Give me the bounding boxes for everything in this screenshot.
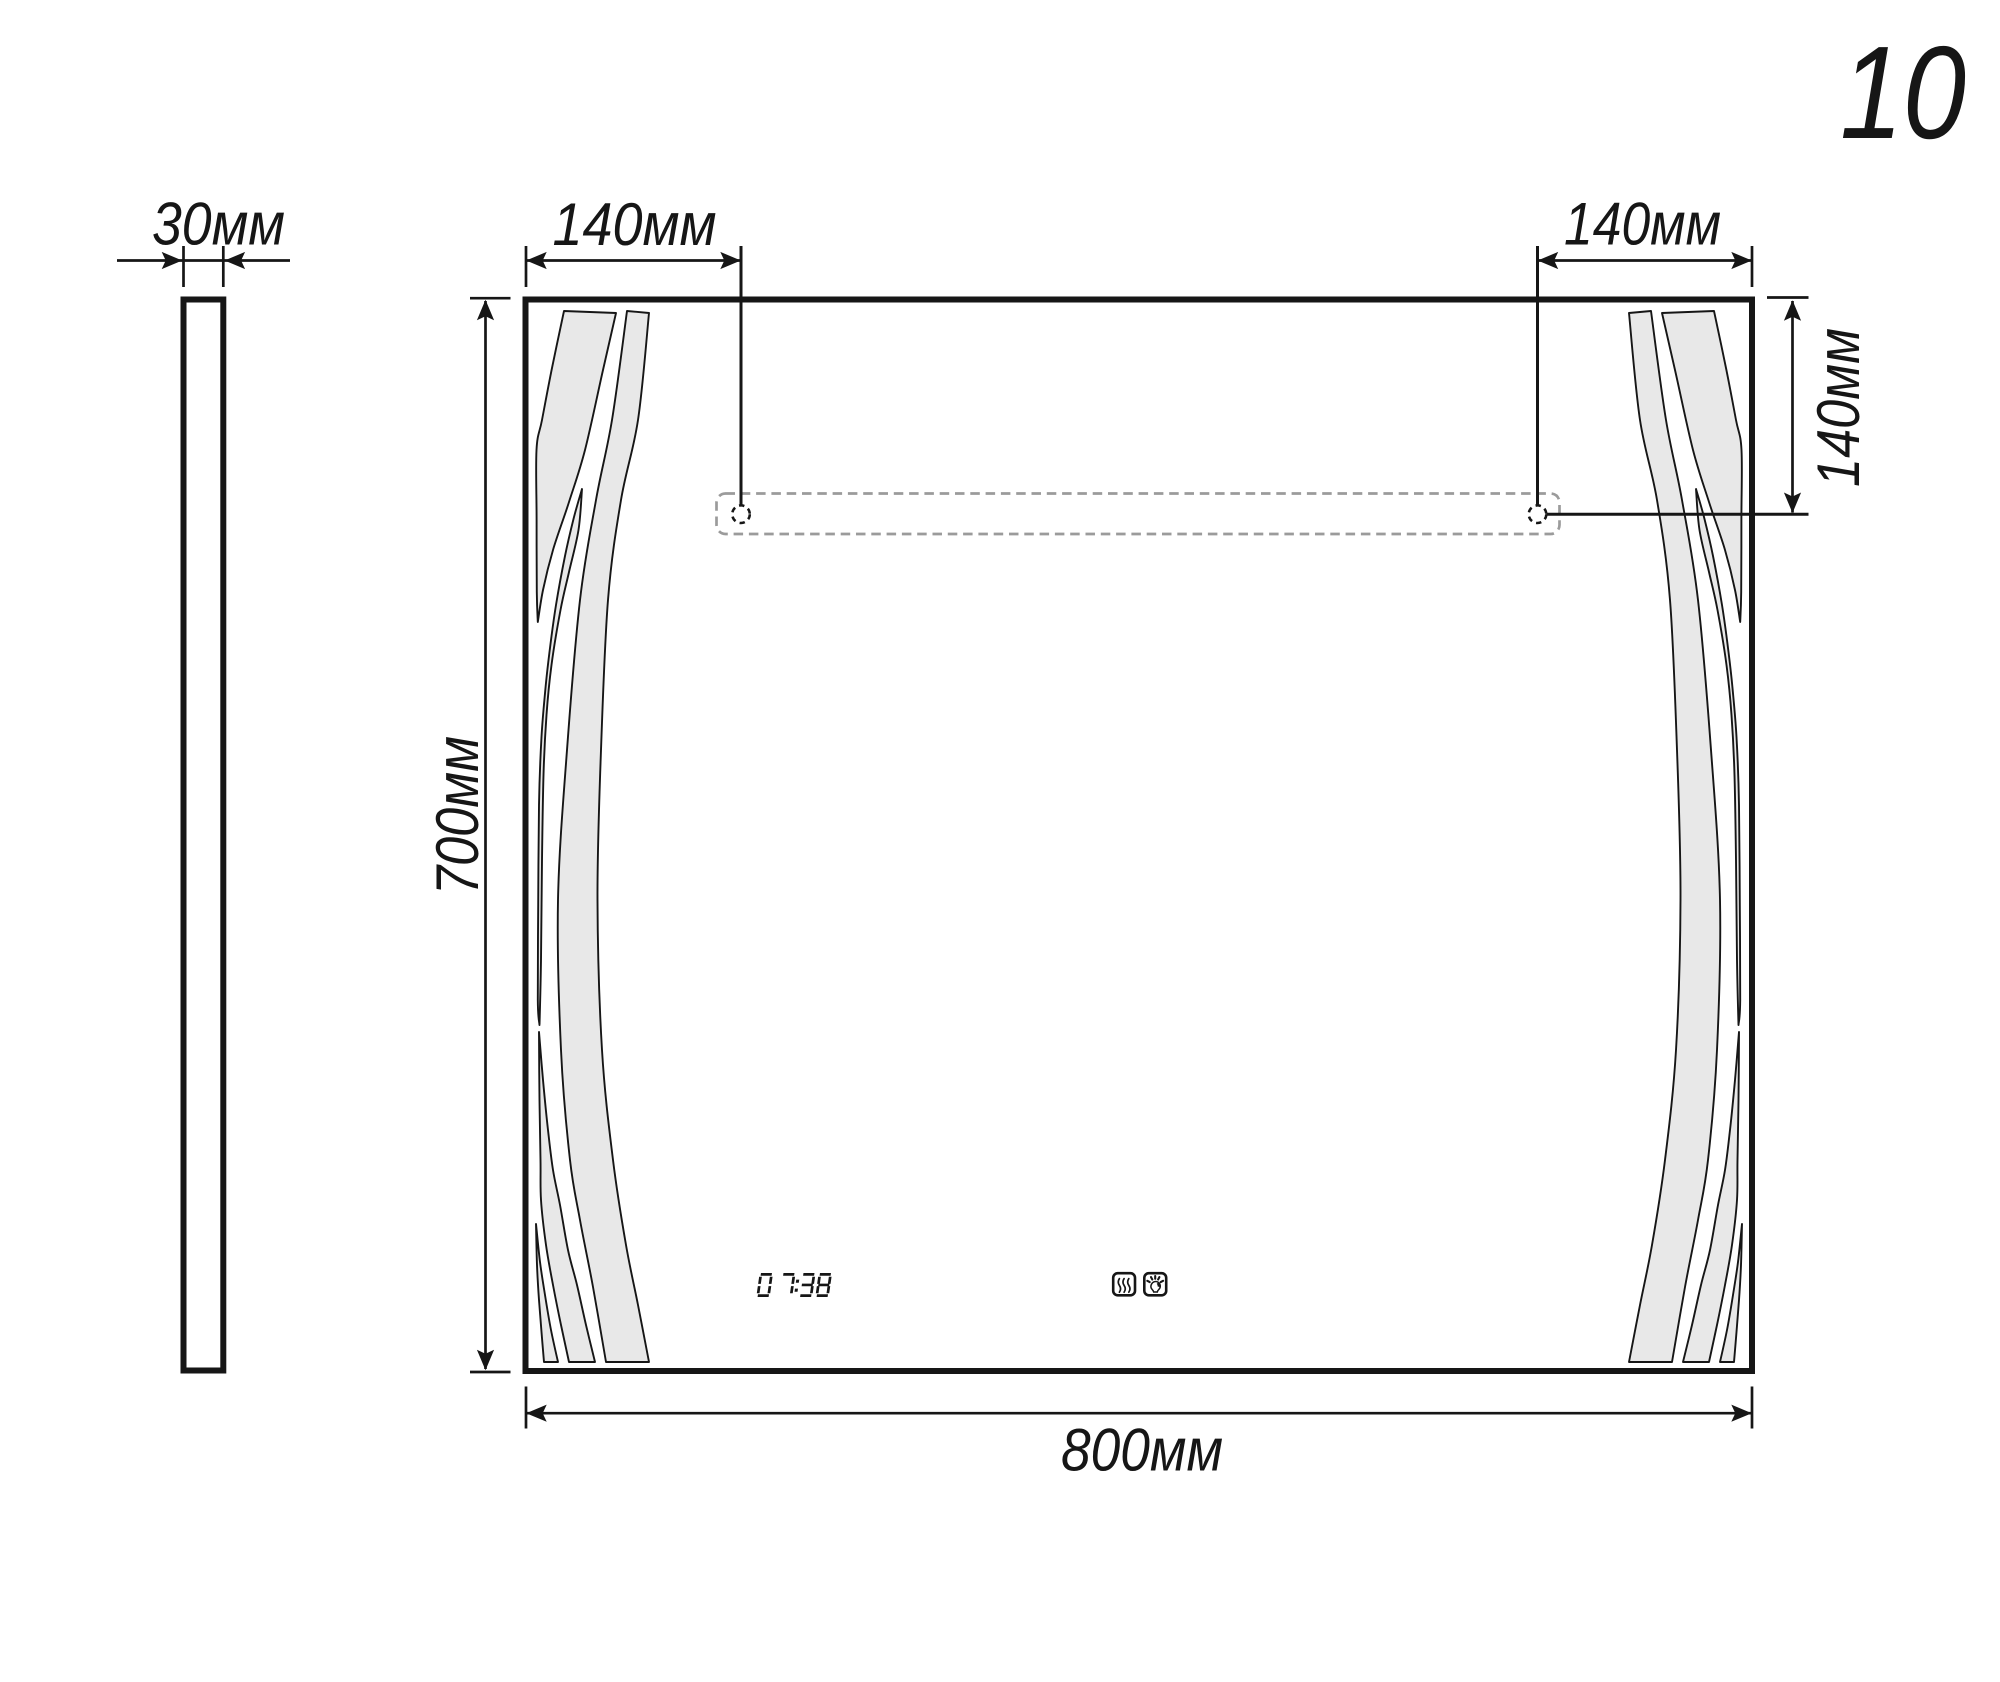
svg-text:10: 10 [1840, 19, 1966, 166]
svg-text:140мм: 140мм [1564, 191, 1721, 258]
svg-text:30мм: 30мм [152, 191, 285, 258]
svg-text:800мм: 800мм [1061, 1417, 1223, 1484]
svg-text:140мм: 140мм [1805, 328, 1872, 487]
svg-text:140мм: 140мм [553, 191, 717, 258]
svg-text:700мм: 700мм [424, 736, 491, 895]
